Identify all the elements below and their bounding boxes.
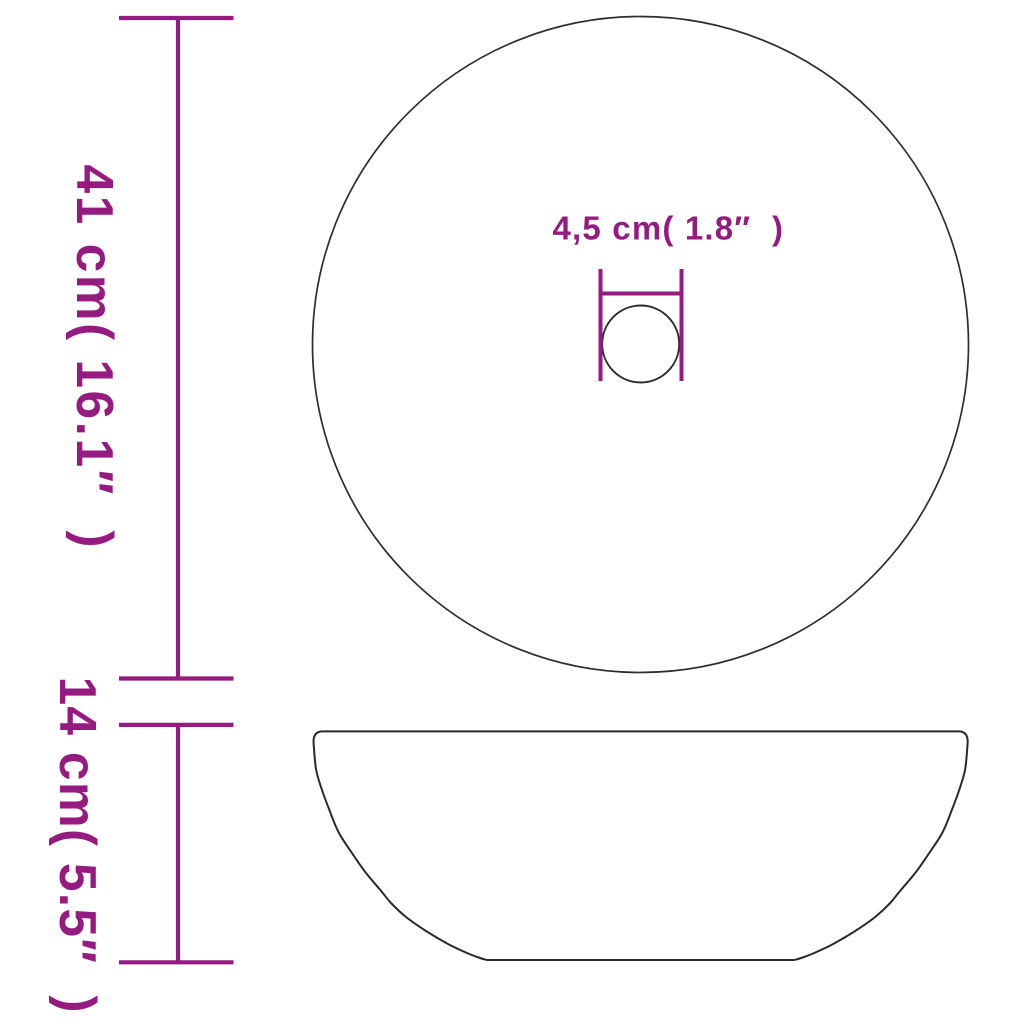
svg-text:14 cm( 5.5″ ): 14 cm( 5.5″ ) xyxy=(49,677,107,1013)
svg-text:41 cm( 16.1″ ): 41 cm( 16.1″ ) xyxy=(66,165,124,548)
svg-text:4,5 cm( 1.8″ ): 4,5 cm( 1.8″ ) xyxy=(553,210,784,247)
